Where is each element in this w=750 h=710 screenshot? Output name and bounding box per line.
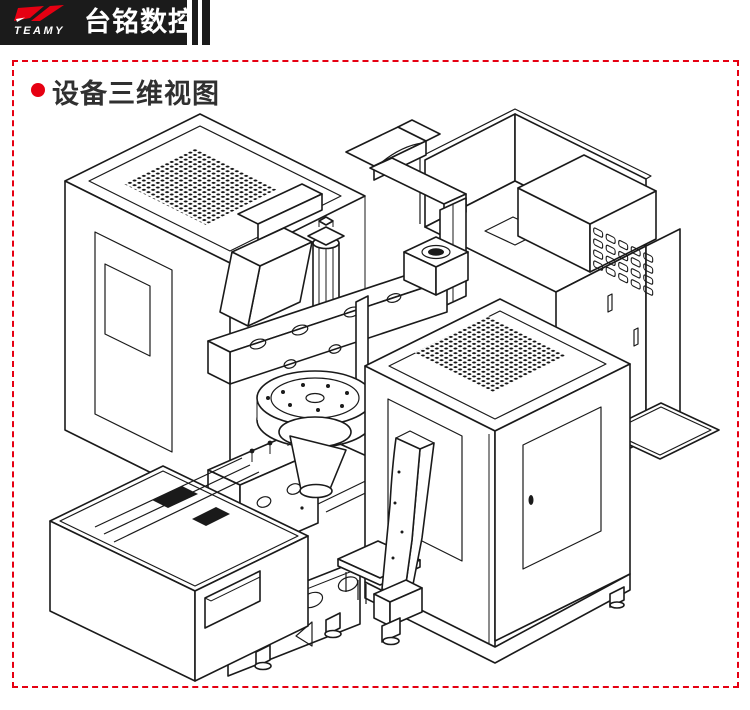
machine-3d-diagram xyxy=(0,0,750,710)
machine-foot xyxy=(325,631,341,638)
machine-foot xyxy=(383,638,399,645)
machine-foot xyxy=(255,663,271,670)
product-page: TEAMY 台铭数控 设备三维视图 xyxy=(0,0,750,710)
machine-foot xyxy=(610,602,624,608)
door-handle xyxy=(529,495,534,505)
